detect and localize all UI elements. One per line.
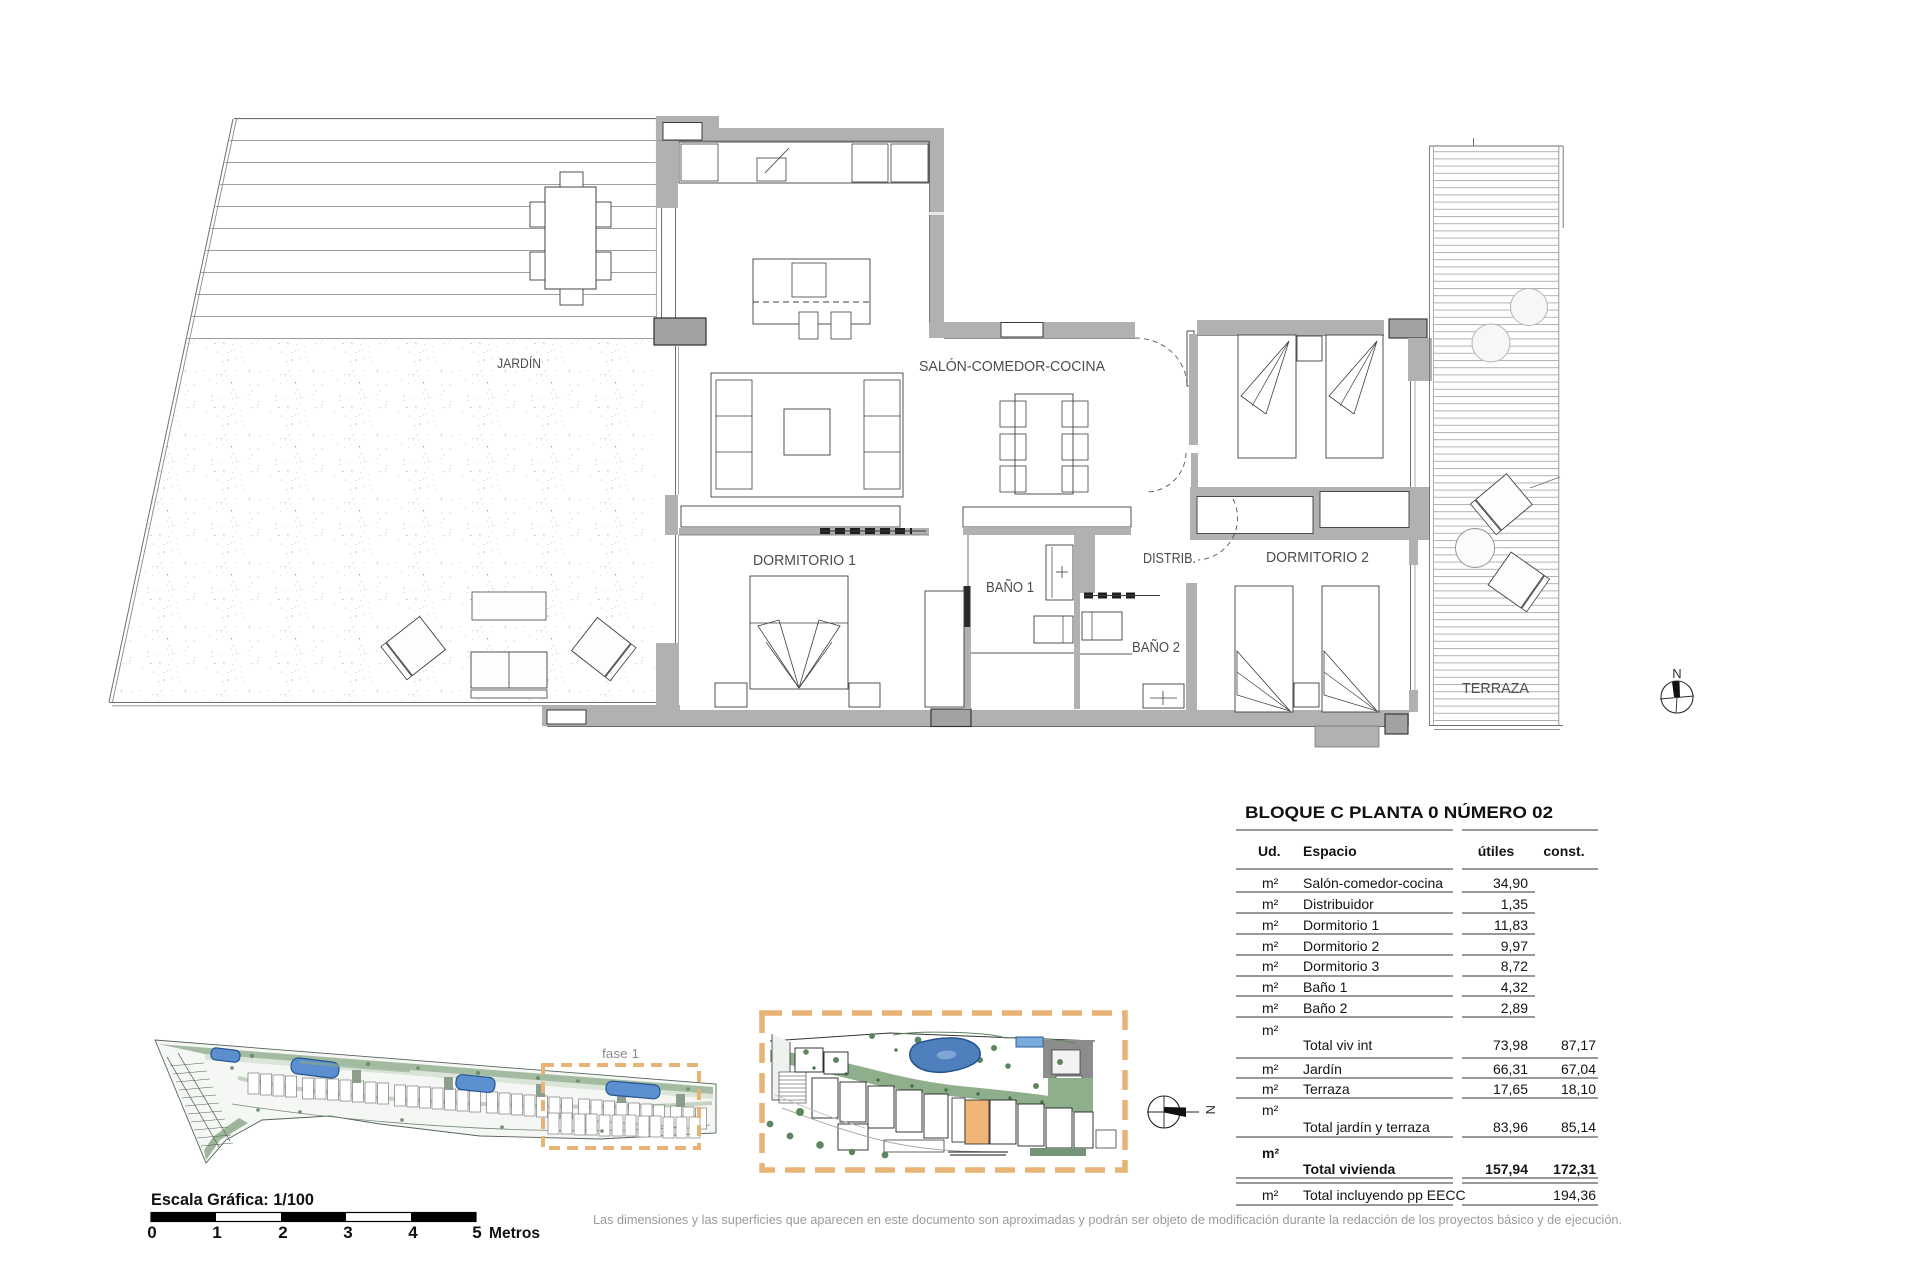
svg-text:83,96: 83,96 bbox=[1493, 1119, 1528, 1135]
svg-text:1: 1 bbox=[212, 1223, 221, 1242]
svg-text:JARDÍN: JARDÍN bbox=[497, 355, 541, 371]
svg-text:SALÓN-COMEDOR-COCINA: SALÓN-COMEDOR-COCINA bbox=[919, 358, 1105, 375]
svg-text:67,04: 67,04 bbox=[1561, 1061, 1596, 1077]
svg-text:73,98: 73,98 bbox=[1493, 1037, 1528, 1053]
svg-text:m²: m² bbox=[1262, 1102, 1279, 1118]
svg-text:m²: m² bbox=[1262, 896, 1279, 912]
svg-text:Dormitorio 2: Dormitorio 2 bbox=[1303, 938, 1379, 954]
svg-text:Total jardín y terraza: Total jardín y terraza bbox=[1303, 1119, 1430, 1135]
svg-text:5: 5 bbox=[472, 1223, 481, 1242]
svg-text:TERRAZA: TERRAZA bbox=[1462, 680, 1529, 697]
svg-text:18,10: 18,10 bbox=[1561, 1081, 1596, 1097]
svg-text:m²: m² bbox=[1262, 1022, 1279, 1038]
svg-text:m²: m² bbox=[1262, 1187, 1279, 1203]
svg-text:útiles: útiles bbox=[1478, 843, 1515, 859]
svg-text:m²: m² bbox=[1262, 1000, 1279, 1016]
svg-text:m²: m² bbox=[1262, 1061, 1279, 1077]
svg-text:4,32: 4,32 bbox=[1501, 979, 1528, 995]
svg-text:66,31: 66,31 bbox=[1493, 1061, 1528, 1077]
svg-text:194,36: 194,36 bbox=[1553, 1187, 1596, 1203]
svg-text:2: 2 bbox=[278, 1223, 287, 1242]
svg-text:Total viv int: Total viv int bbox=[1303, 1037, 1372, 1053]
svg-text:Distribuidor: Distribuidor bbox=[1303, 896, 1374, 912]
svg-text:BAÑO 2: BAÑO 2 bbox=[1132, 639, 1180, 656]
svg-text:DORMITORIO 1: DORMITORIO 1 bbox=[753, 552, 856, 569]
svg-text:Dormitorio 1: Dormitorio 1 bbox=[1303, 917, 1379, 933]
svg-text:m²: m² bbox=[1262, 875, 1279, 891]
svg-text:Jardín: Jardín bbox=[1303, 1061, 1342, 1077]
svg-text:Salón-comedor-cocina: Salón-comedor-cocina bbox=[1303, 875, 1443, 891]
svg-text:Espacio: Espacio bbox=[1303, 843, 1357, 859]
svg-text:11,83: 11,83 bbox=[1494, 917, 1528, 933]
svg-text:m²: m² bbox=[1262, 1081, 1279, 1097]
svg-text:Baño 1: Baño 1 bbox=[1303, 979, 1348, 995]
svg-text:N: N bbox=[1672, 666, 1681, 681]
svg-text:Total incluyendo pp EECC: Total incluyendo pp EECC bbox=[1303, 1187, 1466, 1203]
svg-text:17,65: 17,65 bbox=[1493, 1081, 1528, 1097]
svg-text:m²: m² bbox=[1262, 979, 1279, 995]
svg-text:Baño 2: Baño 2 bbox=[1303, 1000, 1348, 1016]
svg-text:Total vivienda: Total vivienda bbox=[1303, 1161, 1396, 1177]
svg-text:157,94: 157,94 bbox=[1485, 1161, 1528, 1177]
svg-text:DISTRIB.: DISTRIB. bbox=[1143, 550, 1196, 567]
svg-text:N: N bbox=[1203, 1105, 1218, 1114]
svg-text:fase 1: fase 1 bbox=[602, 1046, 639, 1061]
svg-text:m²: m² bbox=[1262, 1145, 1279, 1161]
svg-text:Las dimensiones y las superfic: Las dimensiones y las superficies que ap… bbox=[593, 1213, 1622, 1227]
svg-text:9,97: 9,97 bbox=[1501, 938, 1528, 954]
svg-text:Metros: Metros bbox=[489, 1225, 540, 1242]
svg-text:Ud.: Ud. bbox=[1258, 843, 1281, 859]
svg-text:Terraza: Terraza bbox=[1303, 1081, 1350, 1097]
svg-text:85,14: 85,14 bbox=[1561, 1119, 1596, 1135]
svg-text:1,35: 1,35 bbox=[1501, 896, 1528, 912]
svg-text:3: 3 bbox=[343, 1223, 352, 1242]
svg-text:m²: m² bbox=[1262, 917, 1279, 933]
svg-text:const.: const. bbox=[1543, 843, 1584, 859]
svg-text:Escala Gráfica: 1/100: Escala Gráfica: 1/100 bbox=[151, 1190, 314, 1209]
svg-text:172,31: 172,31 bbox=[1553, 1161, 1596, 1177]
svg-text:BAÑO 1: BAÑO 1 bbox=[986, 579, 1034, 596]
svg-text:87,17: 87,17 bbox=[1561, 1037, 1596, 1053]
svg-text:0: 0 bbox=[147, 1223, 156, 1242]
svg-text:4: 4 bbox=[408, 1223, 418, 1242]
svg-text:DORMITORIO 2: DORMITORIO 2 bbox=[1266, 549, 1369, 566]
svg-text:8,72: 8,72 bbox=[1501, 958, 1528, 974]
svg-text:Dormitorio 3: Dormitorio 3 bbox=[1303, 958, 1379, 974]
svg-text:BLOQUE C PLANTA 0 NÚMERO 02: BLOQUE C PLANTA 0 NÚMERO 02 bbox=[1245, 803, 1553, 822]
svg-text:34,90: 34,90 bbox=[1493, 875, 1528, 891]
svg-text:2,89: 2,89 bbox=[1501, 1000, 1528, 1016]
svg-text:m²: m² bbox=[1262, 958, 1279, 974]
svg-text:m²: m² bbox=[1262, 938, 1279, 954]
